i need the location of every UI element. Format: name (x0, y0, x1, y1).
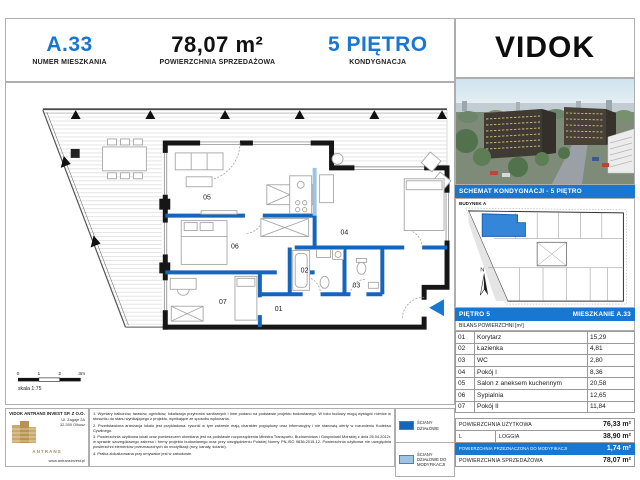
room-label-05: 05 (203, 195, 211, 202)
scale-tick-0: 0 (17, 371, 20, 377)
company-name: VIDOK ANTRANS INVEST SP. Z O.O. (6, 411, 88, 416)
floor-schematic-drawing: N (457, 207, 633, 307)
unit-number-label: NUMER MIESZKANIA (32, 59, 106, 66)
bilans-row: 04Pokój I8,36 (456, 366, 635, 378)
totals-prefix: L (456, 431, 496, 442)
unit-number-block: A.33 NUMER MIESZKANIA (32, 34, 106, 66)
entrance-arrow-icon (429, 299, 444, 316)
company-address: Ul. Zagaje 2A 32-300 Olkusz (60, 417, 85, 449)
sale-area-label: POWIERZCHNIA SPRZEDAŻOWA (159, 59, 275, 66)
room-label-03: 03 (352, 282, 360, 289)
scale-tick-1: 1 (37, 371, 40, 377)
scale-bar: 0 1 2 3m skala 1:75 (17, 371, 86, 392)
legend-item-partition: ŚCIANY DZIAŁOWE (395, 408, 455, 443)
totals-label: POWIERZCHNIA SPRZEDAŻOWA (456, 455, 587, 466)
totals-value: 1,74 m² (587, 443, 634, 454)
legend: ŚCIANY DZIAŁOWE ŚCIANY DZIAŁOWE DO MODYF… (395, 408, 455, 467)
schemat-bar: SCHEMAT KONDYGNACJI - 5 PIĘTRO (455, 185, 635, 198)
legend-swatch-partition-mod (399, 455, 414, 464)
bilans-cell-cval: 15,29 (588, 332, 635, 344)
floor-bar-left: PIĘTRO 5 (459, 311, 490, 318)
bilans-cell-cname: Salon z aneksem kuchennym (475, 378, 588, 390)
legal-note: 3. Powierzchnia użytkowa lokali oraz pom… (93, 434, 391, 449)
brand-logo: VIDOK (455, 18, 635, 78)
bilans-cell-cno: 07 (456, 401, 475, 413)
floor-bar-right: MIESZKANIE A.33 (573, 311, 631, 318)
legal-notes: 1. Wymiary balkonów, tarasów, ogródków, … (89, 408, 395, 467)
totals-row: POWIERZCHNIA SPRZEDAŻOWA78,07 m² (455, 455, 635, 467)
bilans-cell-cno: 03 (456, 355, 475, 367)
bilans-cell-cname: WC (475, 355, 588, 367)
legal-note: 4. Pralka zlokalizowana przy umywalce je… (93, 451, 391, 456)
totals-row: LLOGGIA38,90 m² (455, 431, 635, 443)
floor-plan-drawing: 05 06 07 01 02 03 04 0 1 2 3m skala 1 (6, 83, 454, 404)
bilans-cell-cval: 2,80 (588, 355, 635, 367)
totals-value: 78,07 m² (587, 455, 634, 466)
legend-item-partition-mod: ŚCIANY DZIAŁOWE DO MODYFIKACJI (395, 443, 455, 477)
legend-swatch-partition (399, 421, 414, 430)
bilans-cell-cno: 01 (456, 332, 475, 344)
totals-value: 76,33 m² (587, 419, 634, 430)
totals-row: POWIERZCHNIA UŻYTKOWA76,33 m² (455, 418, 635, 431)
bilans-cell-cname: Sypialnia (475, 389, 588, 401)
bilans-cell-cno: 05 (456, 378, 475, 390)
company-logo-text: ANTRANS (6, 449, 88, 454)
bilans-cell-cval: 4,81 (588, 343, 635, 355)
bilans-row: 07Pokój II11,84 (456, 401, 635, 413)
bilans-cell-cno: 02 (456, 343, 475, 355)
totals-table: POWIERZCHNIA UŻYTKOWA76,33 m²LLOGGIA38,9… (455, 418, 635, 467)
floor-plan: 05 06 07 01 02 03 04 0 1 2 3m skala 1 (5, 82, 455, 405)
totals-row: POWIERZCHNIA PRZEZNACZONA DO MODYFIKACJI… (455, 443, 635, 455)
bilans-row: 03WC2,80 (456, 355, 635, 367)
building-label: BUDYNEK A (459, 201, 486, 206)
bilans-cell-cname: Łazienka (475, 343, 588, 355)
bilans-cell-cval: 12,65 (588, 389, 635, 401)
building-render-image (456, 79, 634, 184)
company-logo-icon (9, 417, 39, 449)
building-render (455, 78, 635, 185)
bilans-cell-cval: 11,84 (588, 401, 635, 413)
bilans-cell-cval: 8,36 (588, 366, 635, 378)
scale-tick-2: 2 (58, 371, 61, 377)
room-label-07: 07 (219, 299, 227, 306)
company-address-line2: 32-300 Olkusz (60, 422, 85, 427)
legal-note: 2. Przedstawiona aranżacja lokalu jest p… (93, 423, 391, 433)
bilans-row: 02Łazienka4,81 (456, 343, 635, 355)
totals-label: POWIERZCHNIA PRZEZNACZONA DO MODYFIKACJI (456, 443, 587, 454)
totals-label: LOGGIA (496, 431, 587, 442)
unit-number: A.33 (32, 34, 106, 56)
floor-bar: PIĘTRO 5 MIESZKANIE A.33 (455, 308, 635, 321)
bilans-table-body: 01Korytarz15,2902Łazienka4,8103WC2,8004P… (456, 332, 635, 413)
bilans-row: 05Salon z aneksem kuchennym20,58 (456, 378, 635, 390)
scale-label: skala 1:75 (18, 386, 42, 392)
floor-label: KONDYGNACJA (328, 59, 428, 66)
company-box: VIDOK ANTRANS INVEST SP. Z O.O. Ul. Zaga… (5, 408, 89, 467)
bilans-title: BILANS POWIERZCHNI [m²] (455, 321, 635, 331)
room-label-02: 02 (301, 267, 309, 274)
totals-label: POWIERZCHNIA UŻYTKOWA (456, 419, 587, 430)
apartment-card: A.33 NUMER MIESZKANIA 78,07 m² POWIERZCH… (0, 0, 640, 480)
room-label-04: 04 (341, 230, 349, 237)
company-website[interactable]: www.antransinvest.pl (48, 458, 85, 463)
svg-text:N: N (480, 268, 484, 274)
header: A.33 NUMER MIESZKANIA 78,07 m² POWIERZCH… (5, 18, 455, 82)
legend-label-partition-mod: ŚCIANY DZIAŁOWE DO MODYFIKACJI (417, 452, 451, 467)
bilans-cell-cno: 04 (456, 366, 475, 378)
bilans-row: 06Sypialnia12,65 (456, 389, 635, 401)
totals-value: 38,90 m² (587, 431, 634, 442)
bilans-table: 01Korytarz15,2902Łazienka4,8103WC2,8004P… (455, 331, 635, 413)
floor-schematic: BUDYNEK A N (455, 198, 635, 308)
bilans-row: 01Korytarz15,29 (456, 332, 635, 344)
area-block: 78,07 m² POWIERZCHNIA SPRZEDAŻOWA (159, 33, 275, 66)
sale-area: 78,07 m² (159, 33, 275, 56)
floor-number: 5 PIĘTRO (328, 34, 428, 56)
legend-label-partition: ŚCIANY DZIAŁOWE (417, 420, 451, 430)
bilans-cell-cname: Korytarz (475, 332, 588, 344)
room-label-06: 06 (231, 243, 239, 250)
scale-tick-3: 3m (78, 371, 85, 377)
bilans-cell-cno: 06 (456, 389, 475, 401)
room-label-01: 01 (275, 306, 283, 313)
bilans-cell-cval: 20,58 (588, 378, 635, 390)
legal-note: 1. Wymiary balkonów, tarasów, ogródków, … (93, 411, 391, 421)
floor-block: 5 PIĘTRO KONDYGNACJA (328, 34, 428, 66)
bilans-cell-cname: Pokój I (475, 366, 588, 378)
bilans-cell-cname: Pokój II (475, 401, 588, 413)
